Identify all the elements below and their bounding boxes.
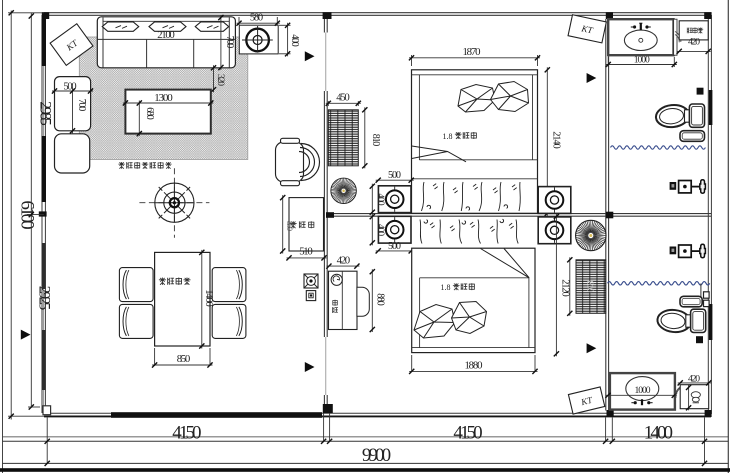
svg-text:810: 810	[370, 134, 381, 147]
svg-text:500: 500	[63, 82, 76, 93]
svg-text:700: 700	[224, 36, 235, 49]
svg-text:2925: 2925	[36, 286, 53, 311]
svg-text:2140: 2140	[550, 131, 561, 149]
svg-text:680: 680	[144, 107, 155, 120]
svg-text:4150: 4150	[453, 423, 482, 444]
svg-text:880: 880	[375, 293, 386, 306]
svg-text:1000: 1000	[634, 54, 650, 65]
svg-text:580: 580	[250, 12, 263, 23]
svg-text:420: 420	[688, 36, 700, 47]
svg-text:1400: 1400	[644, 423, 673, 444]
svg-text:6100: 6100	[17, 200, 38, 229]
svg-text:500: 500	[388, 170, 401, 181]
svg-text:400: 400	[289, 34, 300, 47]
svg-text:400: 400	[375, 224, 386, 236]
svg-text:510: 510	[299, 246, 313, 258]
svg-text:9900: 9900	[362, 445, 391, 466]
svg-text:1300: 1300	[154, 92, 173, 104]
svg-text:1880: 1880	[464, 359, 482, 371]
svg-text:400: 400	[375, 193, 386, 205]
svg-text:2985: 2985	[37, 101, 54, 126]
svg-text:2120: 2120	[559, 279, 570, 297]
svg-text:1.8: 1.8	[442, 132, 452, 141]
svg-text:1000: 1000	[634, 385, 650, 396]
svg-text:420: 420	[688, 374, 700, 385]
svg-text:810: 810	[584, 281, 594, 293]
svg-text:1400: 1400	[203, 289, 214, 307]
svg-text:700: 700	[76, 99, 87, 112]
svg-text:500: 500	[388, 241, 401, 252]
svg-text:4150: 4150	[172, 423, 201, 444]
svg-text:320: 320	[215, 74, 225, 86]
svg-text:1.8: 1.8	[440, 283, 450, 292]
svg-text:450: 450	[336, 92, 350, 104]
svg-text:850: 850	[285, 221, 294, 231]
svg-text:1870: 1870	[462, 46, 480, 58]
svg-text:420: 420	[337, 255, 351, 267]
svg-text:850: 850	[177, 353, 191, 365]
svg-text:2100: 2100	[157, 30, 175, 41]
